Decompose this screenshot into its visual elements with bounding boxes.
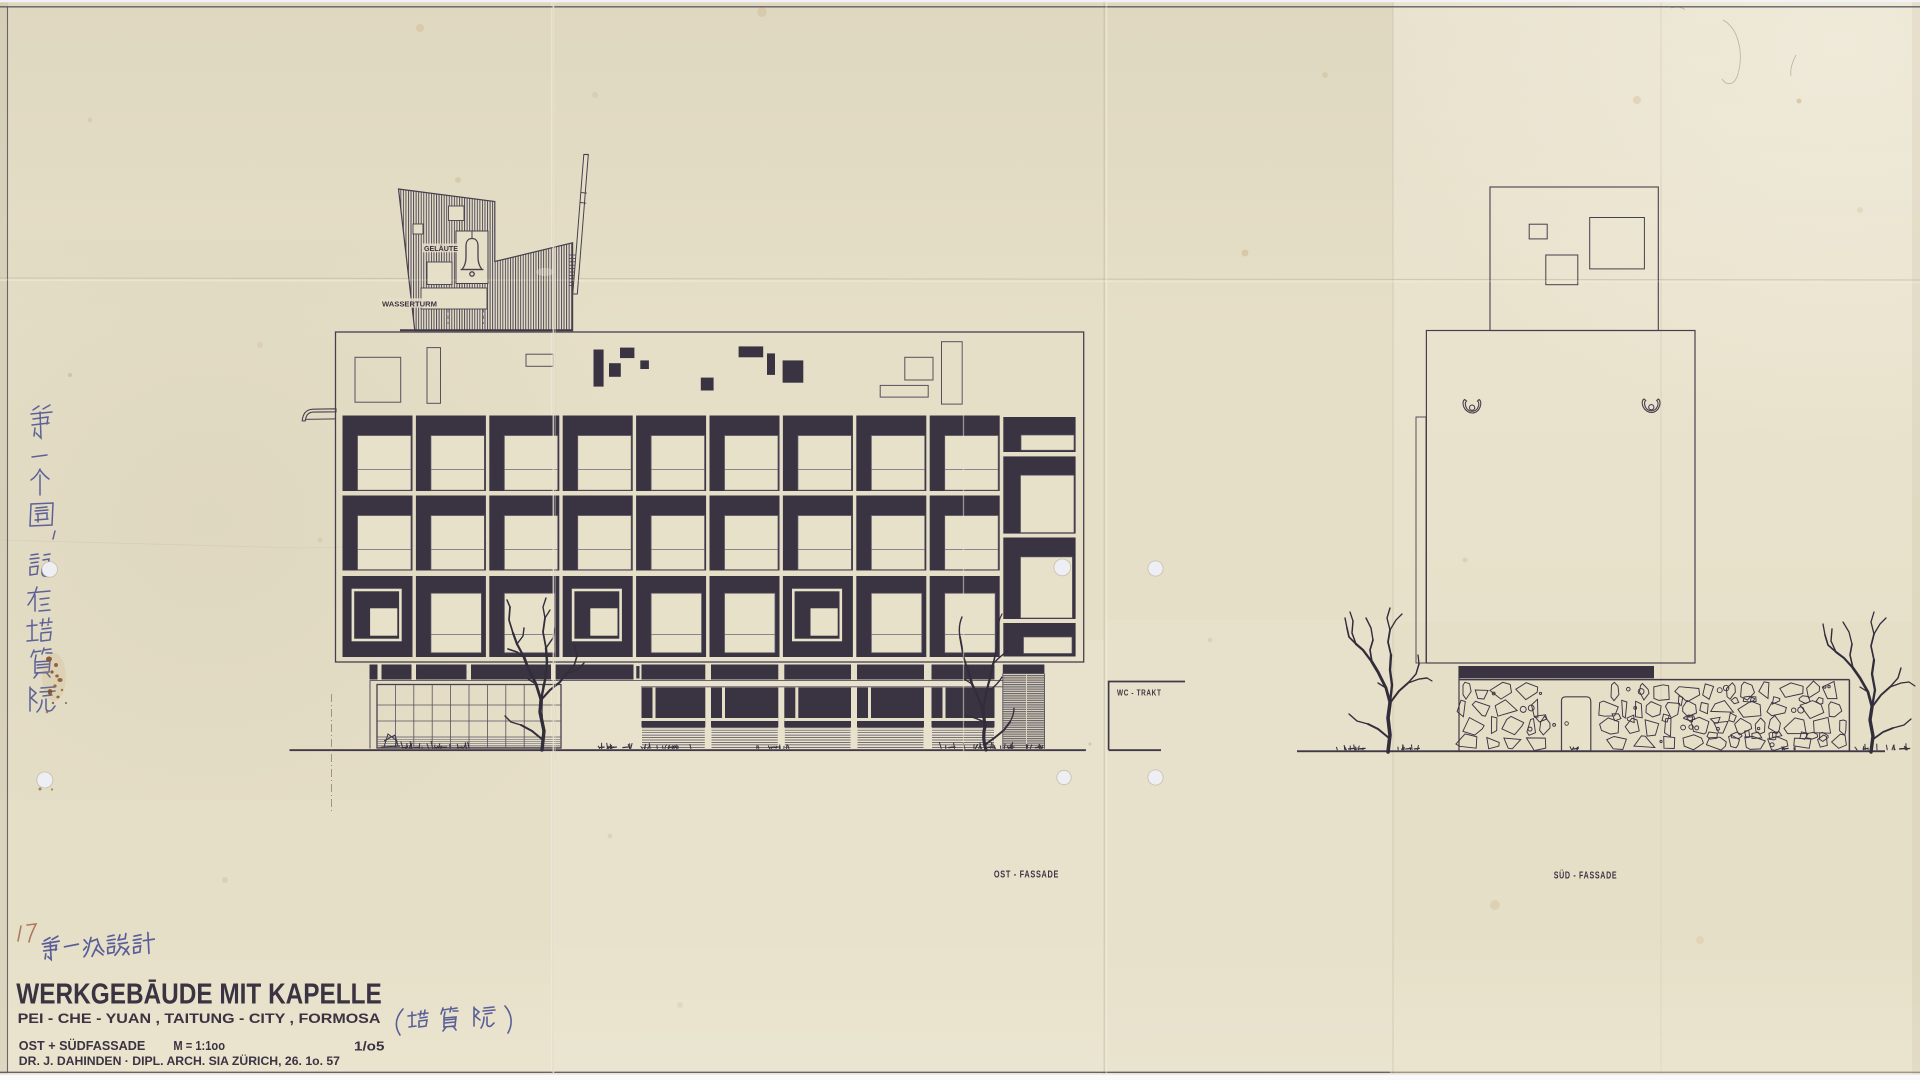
svg-text:M = 1:1oo: M = 1:1oo <box>173 1039 225 1053</box>
svg-text:DR. J. DAHINDEN · DIPL. ARCH: DR. J. DAHINDEN · DIPL. ARCH. SIA ZÜRICH… <box>19 1055 340 1068</box>
svg-text:WASSERTURM: WASSERTURM <box>382 301 437 308</box>
svg-text:1/o5: 1/o5 <box>354 1040 384 1054</box>
svg-text:OST - FASSADE: OST - FASSADE <box>994 869 1059 881</box>
svg-text:GELÄUTE: GELÄUTE <box>424 245 458 253</box>
svg-text:OST + SÜDFASSADE: OST + SÜDFASSADE <box>19 1038 146 1053</box>
svg-text:SÜD - FASSADE: SÜD - FASSADE <box>1554 869 1618 882</box>
svg-text:PEI - CHE - YUAN , TAITUNG - C: PEI - CHE - YUAN , TAITUNG - CITY , FORM… <box>18 1010 381 1026</box>
svg-text:WERKGEBĀUDE MIT KAPELLE: WERKGEBĀUDE MIT KAPELLE <box>16 979 382 1011</box>
svg-text:WC - TRAKT: WC - TRAKT <box>1117 688 1162 697</box>
